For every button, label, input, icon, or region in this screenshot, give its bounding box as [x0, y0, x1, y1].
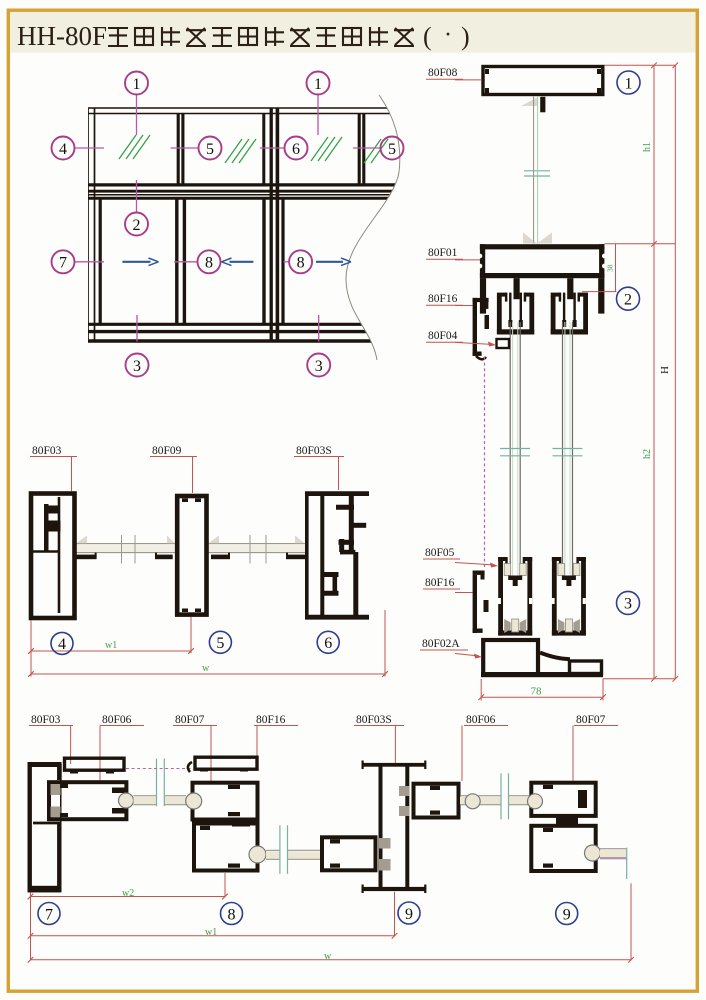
svg-text:w1: w1 [205, 927, 217, 938]
svg-text:w1: w1 [105, 640, 117, 651]
svg-text:9: 9 [405, 906, 413, 923]
svg-text:H: H [659, 366, 671, 374]
svg-text:80F16: 80F16 [428, 293, 458, 305]
svg-text:80F07: 80F07 [175, 714, 205, 726]
svg-text:80F01: 80F01 [428, 247, 458, 259]
svg-text:HH-80F: HH-80F [17, 21, 107, 51]
svg-text:): ) [461, 22, 470, 51]
svg-text:80F16: 80F16 [425, 577, 455, 589]
svg-text:6: 6 [324, 635, 332, 652]
svg-text:80F03: 80F03 [32, 445, 62, 457]
svg-text:80F03S: 80F03S [296, 445, 332, 457]
svg-text:h1: h1 [642, 142, 653, 152]
svg-text:80F06: 80F06 [102, 714, 132, 726]
svg-text:1: 1 [133, 76, 141, 93]
svg-text:7: 7 [59, 255, 67, 272]
svg-text:w: w [202, 663, 210, 674]
svg-text:80F05: 80F05 [425, 547, 455, 559]
svg-text:8: 8 [205, 255, 213, 272]
svg-text:w2: w2 [122, 888, 134, 899]
svg-text:6: 6 [292, 141, 300, 158]
svg-text:80F04: 80F04 [428, 330, 458, 342]
svg-text:7: 7 [45, 906, 53, 923]
svg-text:9: 9 [563, 906, 571, 923]
svg-text:3: 3 [315, 358, 323, 375]
svg-text:5: 5 [206, 141, 214, 158]
svg-text:80F02A: 80F02A [422, 638, 460, 650]
svg-text:1: 1 [625, 75, 633, 92]
svg-text:8: 8 [228, 906, 236, 923]
svg-text:8: 8 [297, 255, 305, 272]
svg-text:2: 2 [133, 217, 141, 234]
svg-text:78: 78 [531, 686, 543, 698]
svg-text:w: w [324, 951, 332, 962]
svg-text:80F07: 80F07 [576, 714, 606, 726]
svg-text:80F06: 80F06 [466, 714, 496, 726]
svg-text:5: 5 [216, 635, 224, 652]
svg-text:80F16: 80F16 [256, 714, 286, 726]
svg-text:h2: h2 [642, 449, 653, 459]
svg-text:80F03: 80F03 [31, 714, 61, 726]
svg-text:80F08: 80F08 [428, 67, 458, 79]
svg-text:1: 1 [314, 76, 322, 93]
svg-text:4: 4 [58, 636, 66, 653]
svg-text:4: 4 [59, 141, 67, 158]
svg-text:80F09: 80F09 [152, 445, 182, 457]
svg-text:5: 5 [388, 141, 396, 158]
svg-text:2: 2 [624, 291, 632, 308]
svg-text:·: · [444, 22, 452, 48]
svg-text:38: 38 [606, 264, 615, 272]
svg-text:3: 3 [133, 358, 141, 375]
svg-text:80F03S: 80F03S [356, 714, 392, 726]
svg-text:3: 3 [624, 596, 632, 613]
svg-text:(: ( [423, 22, 432, 51]
